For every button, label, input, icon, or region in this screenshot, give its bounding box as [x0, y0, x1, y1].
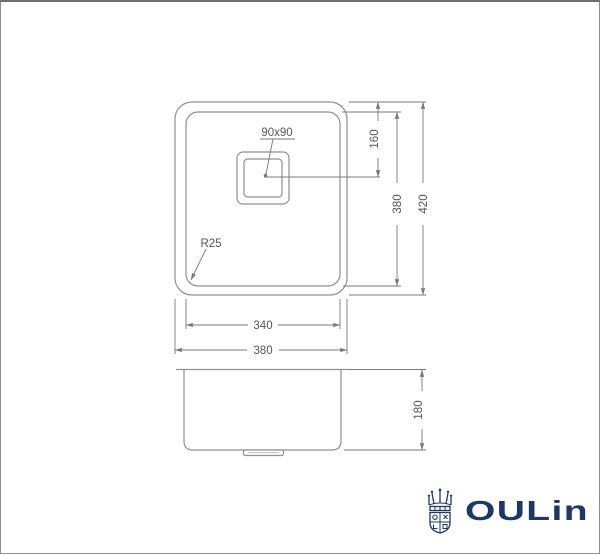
- sink-technical-drawing: 90x90 R25 160 380 420 340 380 180: [1, 2, 599, 553]
- dim-label-420: 420: [418, 194, 430, 213]
- corner-radius-label: R25: [200, 238, 221, 250]
- dim-label-380-horizontal: 380: [253, 345, 272, 357]
- top-view-dimension-lines: [175, 102, 426, 354]
- dimension-texts: 90x90 R25 160 380 420 340 380 180: [200, 127, 430, 420]
- brand-logo: OULin: [428, 489, 589, 534]
- drain-size-label: 90x90: [261, 127, 292, 139]
- corner-radius-leader: [191, 249, 206, 280]
- side-view-outlines: [176, 370, 350, 456]
- side-view-body-outline: [184, 370, 341, 450]
- drawing-page: 90x90 R25 160 380 420 340 380 180: [0, 0, 600, 554]
- drain-size-leader: [260, 139, 295, 177]
- dim-label-180: 180: [413, 400, 425, 419]
- oulin-crest-icon: [428, 489, 452, 534]
- dim-label-340: 340: [253, 320, 272, 332]
- dim-label-160: 160: [369, 129, 381, 148]
- brand-name: OULin: [465, 495, 589, 526]
- dim-label-380-vertical: 380: [392, 194, 404, 213]
- drain-inner-outline: [244, 159, 282, 197]
